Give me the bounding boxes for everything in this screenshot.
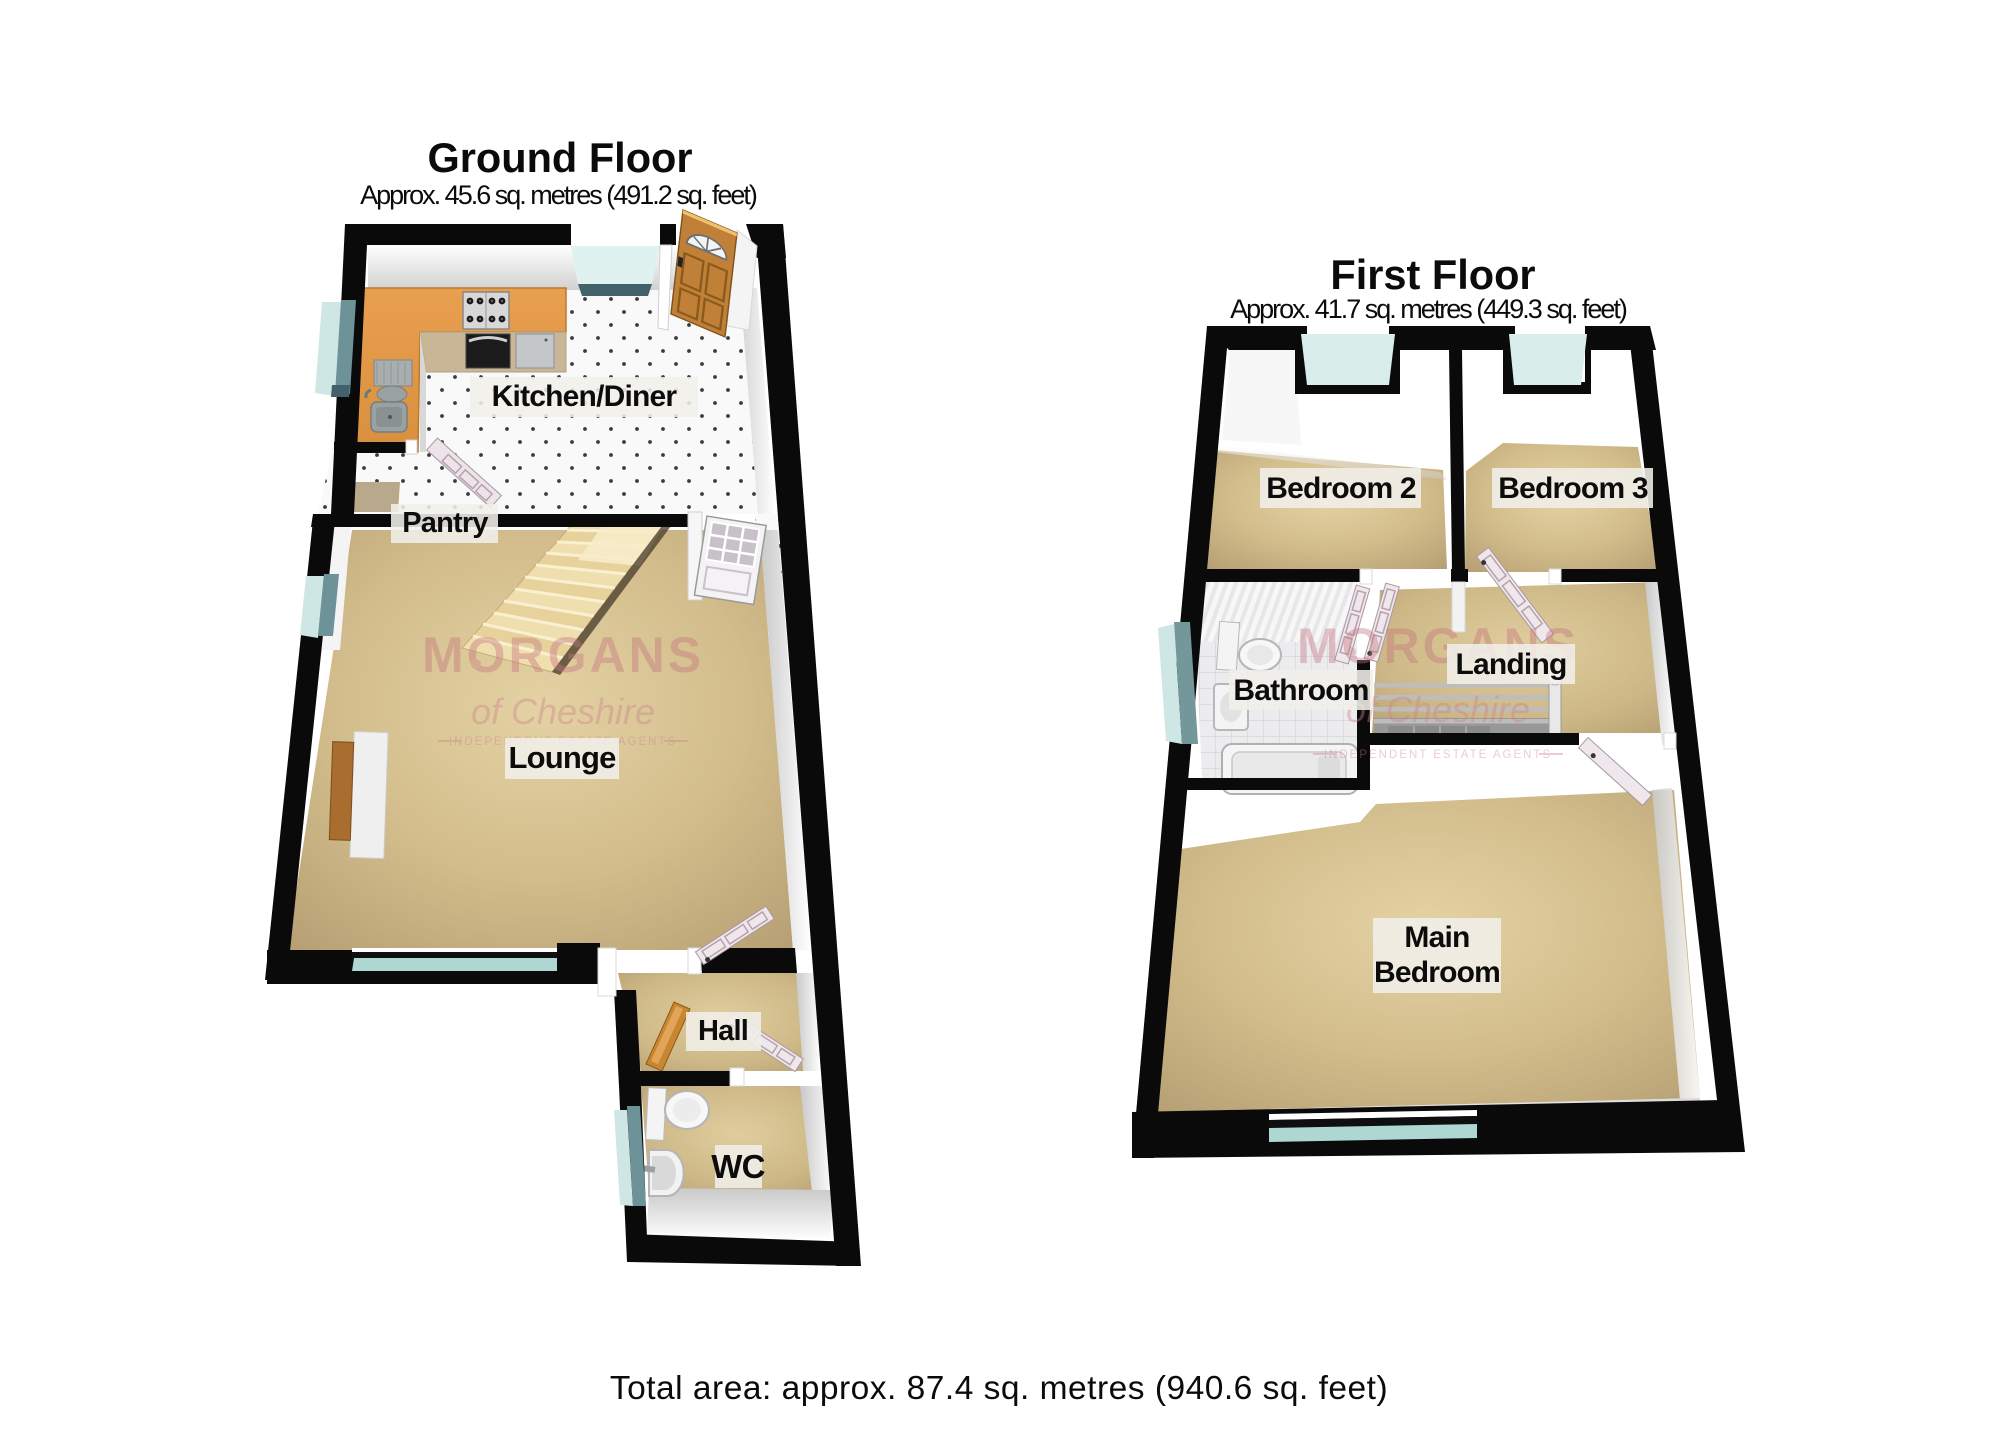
svg-text:INDEPENDENT ESTATE AGENTS: INDEPENDENT ESTATE AGENTS: [1324, 749, 1552, 761]
svg-text:Approx. 41.7 sq. metres (449.3: Approx. 41.7 sq. metres (449.3 sq. feet): [1230, 294, 1627, 324]
svg-text:Bedroom 2: Bedroom 2: [1266, 472, 1416, 505]
svg-text:Main: Main: [1404, 921, 1469, 954]
svg-text:Kitchen/Diner: Kitchen/Diner: [492, 380, 678, 413]
svg-text:of Cheshire: of Cheshire: [1346, 689, 1530, 730]
svg-text:Approx. 45.6 sq. metres (491.2: Approx. 45.6 sq. metres (491.2 sq. feet): [360, 180, 757, 210]
svg-text:First Floor: First Floor: [1330, 251, 1535, 298]
svg-text:Ground Floor: Ground Floor: [427, 134, 692, 181]
svg-text:MORGANS: MORGANS: [422, 627, 704, 683]
svg-text:Hall: Hall: [698, 1015, 748, 1047]
svg-text:Bedroom: Bedroom: [1374, 956, 1500, 989]
svg-text:of Cheshire: of Cheshire: [471, 691, 655, 732]
svg-text:Bedroom 3: Bedroom 3: [1498, 472, 1648, 505]
svg-text:Bathroom: Bathroom: [1233, 674, 1368, 707]
svg-text:Total area: approx. 87.4 sq. m: Total area: approx. 87.4 sq. metres (940…: [610, 1370, 1388, 1407]
svg-text:Lounge: Lounge: [508, 740, 616, 775]
svg-text:Landing: Landing: [1455, 648, 1566, 681]
svg-text:WC: WC: [711, 1148, 764, 1185]
svg-text:Pantry: Pantry: [402, 507, 488, 539]
